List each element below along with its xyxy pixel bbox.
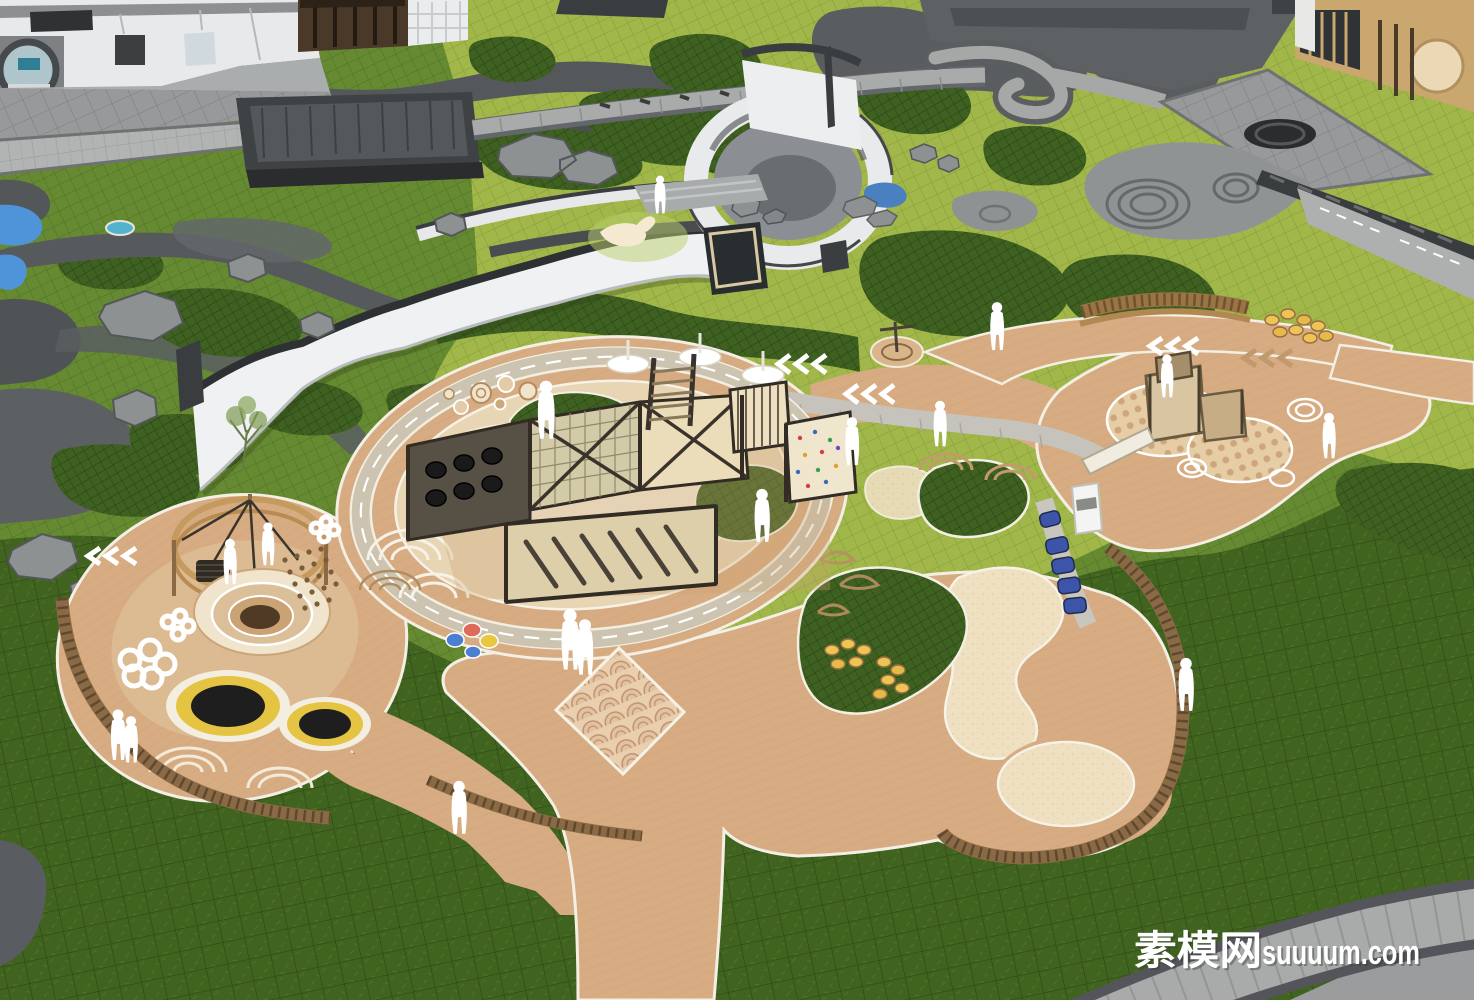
svg-text:suuuum.com: suuuum.com xyxy=(1262,934,1420,972)
svg-text:素模网: 素模网 xyxy=(1134,929,1262,973)
